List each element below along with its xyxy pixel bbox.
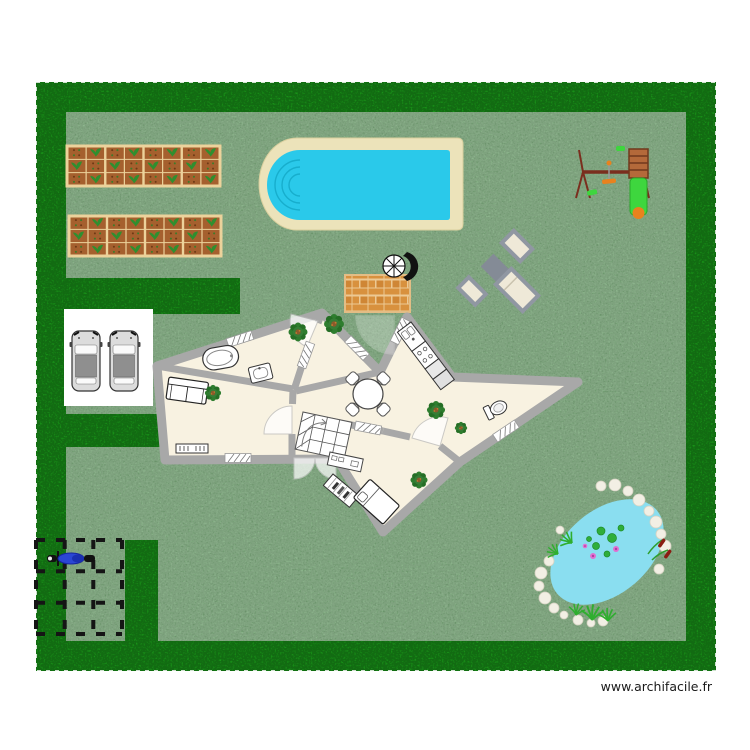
- pond-stone: [539, 592, 551, 604]
- pond-flower-center: [615, 548, 617, 550]
- lily-pad: [618, 525, 624, 531]
- watermark-text: www.archifacile.fr: [601, 679, 713, 694]
- pond-stone: [623, 486, 633, 496]
- pond-flower-center: [592, 555, 594, 557]
- pond-stone: [596, 481, 606, 491]
- interior-wall[interactable]: [293, 390, 294, 404]
- moto-rear-wheel: [84, 555, 95, 562]
- garden-bed[interactable]: [67, 146, 220, 186]
- moto-seat: [72, 555, 84, 563]
- pond-stone: [560, 611, 568, 619]
- pond-stone: [656, 529, 666, 539]
- swimming-pool[interactable]: [259, 138, 463, 230]
- plant[interactable]: [455, 422, 467, 434]
- plan-page: www.archifacile.fr: [0, 0, 750, 750]
- lily-pad: [604, 551, 610, 557]
- pond-stone: [650, 516, 662, 528]
- pond-stone: [549, 603, 559, 613]
- garden-plan-canvas: www.archifacile.fr: [0, 0, 750, 750]
- lily-pad: [608, 534, 617, 543]
- pond-stone: [573, 615, 583, 625]
- pond-flower-center: [584, 545, 586, 547]
- handle-grip: [616, 146, 625, 151]
- pond-stone: [654, 564, 664, 574]
- pond-stone: [644, 506, 654, 516]
- pond-stone: [587, 619, 595, 627]
- pond-stone: [534, 581, 544, 591]
- plant[interactable]: [427, 401, 445, 419]
- pond-stone: [609, 479, 621, 491]
- interior-wall[interactable]: [318, 313, 322, 323]
- sofa[interactable]: [166, 377, 209, 404]
- pond-stone: [633, 494, 645, 506]
- pond-stone: [535, 567, 547, 579]
- plant[interactable]: [289, 323, 308, 342]
- moto-headlight: [48, 557, 52, 561]
- pond-stone: [556, 526, 564, 534]
- plant[interactable]: [205, 385, 221, 401]
- garden-bed[interactable]: [69, 216, 221, 256]
- car[interactable]: [108, 331, 141, 391]
- car[interactable]: [70, 331, 103, 391]
- terrace[interactable]: [345, 275, 410, 312]
- slide-end: [633, 207, 645, 219]
- radiator[interactable]: [176, 444, 208, 453]
- lily-pad: [593, 543, 600, 550]
- lily-pad: [597, 527, 605, 535]
- paved-terrace: [345, 275, 410, 312]
- lily-pad: [587, 537, 592, 542]
- window[interactable]: [225, 454, 251, 463]
- plant[interactable]: [410, 471, 427, 488]
- swing-hook: [607, 161, 612, 166]
- plant[interactable]: [324, 314, 344, 334]
